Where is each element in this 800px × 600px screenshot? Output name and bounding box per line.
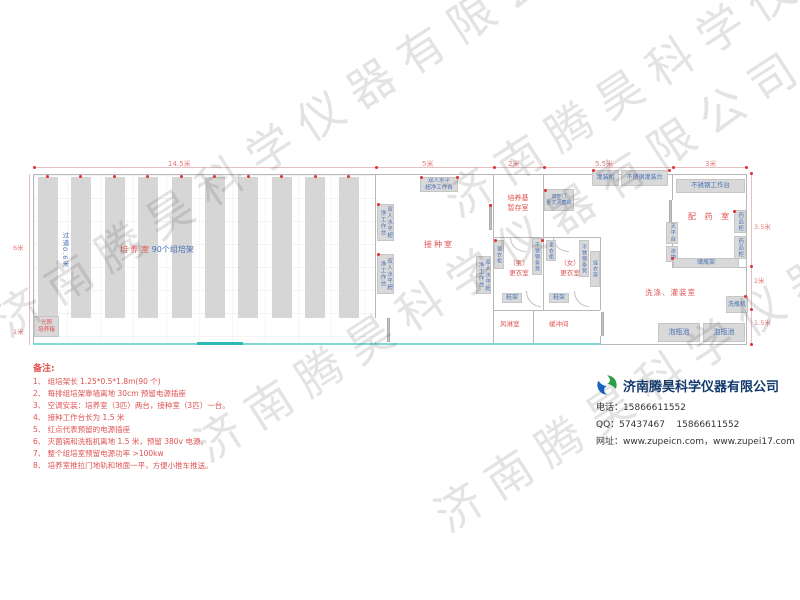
buffer-room-label: 缓冲间	[549, 318, 569, 328]
phone-label: 电话：	[596, 403, 623, 413]
note-item: 8、 培养室推拉门地轨和地面一平，方便小推车推送。	[33, 460, 303, 472]
power-outlet-dot	[750, 343, 753, 346]
wall-right	[746, 174, 747, 345]
door-arc-buffer	[574, 291, 589, 307]
culture-rack-row	[305, 177, 325, 318]
female-room-line1: （女）	[557, 258, 583, 268]
culture-room-rack-count: 90个组培架	[152, 245, 194, 254]
wall-pharmacy-west-upper	[672, 174, 673, 200]
note-item: 7、 整个组培室预留电源功率 >100kw	[33, 448, 303, 460]
dim-label-medium-width: 2米	[508, 159, 519, 169]
power-outlet-dot	[493, 166, 496, 169]
dim-label-right-washing: 2米	[754, 275, 765, 285]
laminar-bench-left-2: 双人水平超净工作台	[377, 254, 394, 294]
culture-rack-row	[272, 177, 292, 318]
power-outlet-dot	[46, 175, 49, 178]
power-outlet-dot	[671, 257, 674, 260]
medium-room-label: 培养基 暂存室	[500, 193, 536, 213]
notes-list: 1、 组培架长 1.25*0.5*1.8m(90 个) 2、 每排组培架靠墙离地…	[33, 376, 303, 472]
power-outlet-dot	[494, 239, 497, 242]
company-qq-line: QQ：57437467 15866611552	[596, 417, 795, 430]
medium-room-line1: 培养基	[500, 193, 536, 203]
power-outlet-dot	[750, 308, 753, 311]
laminar-bench-top: 双人水平 超净工作台	[420, 177, 458, 192]
web-urls: www.zupeicn.com，www.zupei17.com	[623, 437, 795, 447]
power-outlet-dot	[745, 166, 748, 169]
door-arc-airshower	[526, 291, 541, 307]
dim-label-right-pool: 1.5米	[754, 317, 771, 327]
steel-worktable-box: 不锈钢工作台	[676, 179, 745, 193]
web-label: 网址：	[596, 437, 623, 447]
door-leaf-washing-room	[601, 312, 604, 336]
dim-label-inoculation-width: 5米	[422, 159, 433, 169]
power-outlet-dot	[668, 169, 671, 172]
bottle-storage-rack-box: 储瓶架	[673, 258, 739, 268]
watermark-text: 济南腾昊科学仪器有限公司	[430, 0, 800, 230]
power-outlet-dot	[541, 239, 544, 242]
phone-number: 15866611552	[623, 403, 686, 413]
dim-label-left-main: 6米	[13, 242, 24, 252]
light-incubator-box: 光照 培养箱	[34, 316, 59, 337]
power-outlet-dot	[280, 175, 283, 178]
pharmacy-room-label: 配 药 室	[688, 211, 732, 222]
male-room-line1: （男）	[506, 258, 532, 268]
note-item: 5、 红点代表预留的电源插座	[33, 424, 303, 436]
power-outlet-dot	[213, 175, 216, 178]
company-phone-line: 电话：15866611552	[596, 400, 795, 413]
power-outlet-dot	[79, 175, 82, 178]
power-outlet-dot	[420, 176, 423, 179]
top-dimension-line	[33, 167, 747, 168]
power-outlet-dot	[744, 295, 747, 298]
sterilizer-line2: 卧式灭菌锅	[546, 200, 571, 206]
power-outlet-dot	[750, 172, 753, 175]
power-outlet-dot	[733, 210, 736, 213]
wall-culture-inoculation-stub	[375, 342, 376, 345]
power-outlet-dot	[672, 166, 675, 169]
power-outlet-dot	[592, 169, 595, 172]
company-web-line: 网址：www.zupeicn.com，www.zupei17.com	[596, 434, 795, 447]
right-dimension-line	[751, 174, 752, 345]
note-item: 2、 每排组培架靠墙离地 30cm 预留电源插座	[33, 388, 303, 400]
wall-bottom-right	[600, 344, 747, 345]
dim-label-total-width: 14.5米	[168, 159, 191, 169]
light-incubator-line1: 光照	[41, 320, 52, 327]
power-outlet-dot	[543, 166, 546, 169]
sterilizer-box: 双开门 卧式灭菌锅	[544, 189, 574, 211]
power-outlet-dot	[33, 166, 36, 169]
power-outlet-dot	[544, 189, 547, 192]
qq-label: QQ：	[596, 420, 619, 430]
male-changing-room-label: （男） 更衣室	[506, 258, 532, 278]
floor-plan-page: 济南腾昊科学仪器有限公司 济南腾昊科学仪器有限公司 济南腾昊科学仪器有限公司 济…	[0, 0, 800, 600]
power-outlet-dot	[247, 175, 250, 178]
inoculation-room-label: 接种室	[424, 239, 454, 250]
soak-pool-box-2: 泡瓶池	[703, 323, 745, 342]
shoe-rack-box-1: 鞋架	[502, 293, 522, 303]
culture-rack-row	[71, 177, 91, 318]
note-item: 3、 空调安装：培养室（3匹）两台，接种室（3匹）一台。	[33, 400, 303, 412]
wardrobe-box-2: 更衣柜	[546, 240, 556, 261]
culture-rack-row	[38, 177, 58, 318]
power-outlet-dot	[750, 265, 753, 268]
filling-machine-box: 灌装机	[592, 170, 619, 186]
shoe-rack-box-2: 鞋架	[549, 293, 569, 303]
door-arc-male-room	[510, 238, 526, 252]
wardrobe-box-1: 更衣柜	[494, 240, 504, 269]
power-outlet-dot	[377, 203, 380, 206]
power-outlet-dot	[375, 166, 378, 169]
washing-room-label: 洗涤、灌装室	[645, 287, 696, 298]
company-logo-icon	[596, 374, 618, 396]
wall-airshower-buffer	[533, 310, 534, 345]
note-item: 6、 灭菌锅和洗瓶机离地 1.5 米，预留 380v 电源。	[33, 436, 303, 448]
power-outlet-dot	[146, 175, 149, 178]
culture-room-label: 培 养 室 90个组培架	[120, 244, 194, 255]
bottle-washer-box: 洗瓶机	[726, 296, 748, 313]
dim-label-left-bottom: 1米	[13, 326, 24, 336]
sliding-door-track	[197, 342, 243, 345]
power-outlet-dot	[489, 204, 492, 207]
culture-room-name: 培 养 室	[120, 245, 149, 254]
left-dimension-line	[29, 174, 30, 345]
balance-table-box: 天平台	[666, 222, 678, 244]
notes-block: 备注: 1、 组培架长 1.25*0.5*1.8m(90 个) 2、 每排组培架…	[33, 361, 303, 472]
steel-bench-box-1: 不锈钢条凳	[532, 238, 542, 275]
culture-rack-row	[238, 177, 258, 318]
dim-label-washing-width: 5.5米	[595, 159, 613, 169]
medicine-cabinet-box-1: 药品柜	[734, 210, 746, 233]
qq-numbers: 57437467 15866611552	[619, 420, 739, 430]
wall-changing-east-stub	[600, 336, 601, 345]
power-outlet-dot	[314, 175, 317, 178]
power-outlet-dot	[180, 175, 183, 178]
medicine-cabinet-box-2: 药品柜	[734, 236, 746, 259]
power-outlet-dot	[456, 176, 459, 179]
male-room-line2: 更衣室	[506, 268, 532, 278]
coat-rack-box: 挂衣架	[590, 251, 600, 287]
door-leaf-pharmacy-room	[669, 200, 672, 222]
laminar-bench-left-1: 双人水平超净工作台	[377, 204, 394, 241]
dim-label-pharmacy-width: 3米	[705, 159, 716, 169]
female-changing-room-label: （女） 更衣室	[557, 258, 583, 278]
culture-rack-row	[205, 177, 225, 318]
wall-bottom-glass	[33, 343, 601, 345]
dim-label-right-pharmacy: 3.5米	[754, 221, 771, 231]
female-room-line2: 更衣室	[557, 268, 583, 278]
power-outlet-dot	[113, 175, 116, 178]
power-outlet-dot	[377, 253, 380, 256]
laminar-bench-line2: 超净工作台	[425, 185, 453, 192]
company-name: 济南腾昊科学仪器有限公司	[623, 376, 779, 395]
culture-rack-row	[339, 177, 359, 318]
note-item: 1、 组培架长 1.25*0.5*1.8m(90 个)	[33, 376, 303, 388]
company-block: 济南腾昊科学仪器有限公司 电话：15866611552 QQ：57437467 …	[596, 374, 795, 447]
aisle-label: 过道0.6米	[60, 232, 70, 268]
laminar-bench-right: 双人水平超净工作台	[476, 256, 491, 294]
wall-changing-east	[600, 237, 601, 310]
notes-title: 备注:	[33, 361, 303, 374]
wall-changing-south	[493, 310, 600, 311]
medium-room-line2: 暂存室	[500, 203, 536, 213]
power-outlet-dot	[347, 175, 350, 178]
soak-pool-box-1: 泡瓶池	[658, 323, 700, 342]
light-incubator-line2: 培养箱	[38, 327, 55, 334]
filling-table-box: 不锈钢灌装台	[621, 170, 668, 186]
door-leaf-culture-room	[387, 318, 390, 342]
note-item: 4、 接种工作台长为 1.5 米	[33, 412, 303, 424]
wall-culture-inoculation	[375, 174, 376, 318]
door-leaf-inoculation-room	[489, 204, 492, 230]
laminar-bench-line1: 双人水平	[428, 178, 450, 185]
air-shower-room-label: 风淋室	[500, 318, 520, 328]
